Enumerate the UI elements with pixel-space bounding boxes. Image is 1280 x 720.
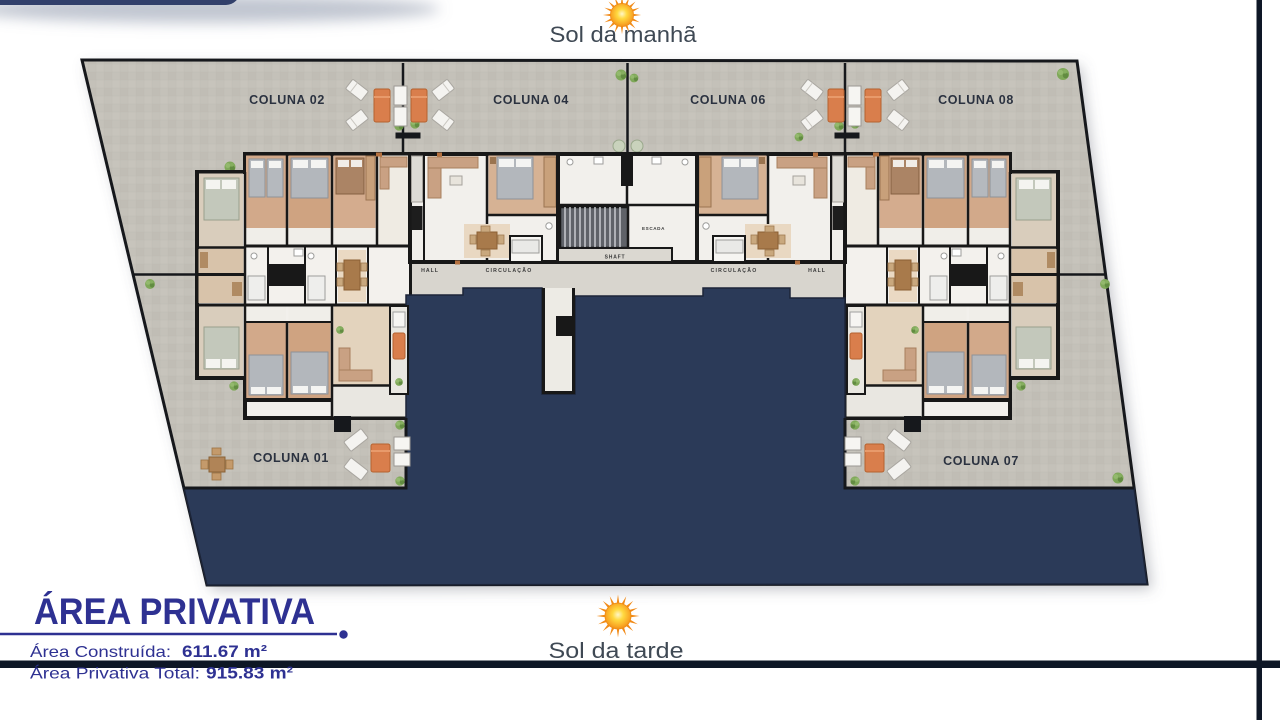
svg-text:611.67 m²: 611.67 m² bbox=[182, 642, 267, 661]
svg-text:COLUNA 01: COLUNA 01 bbox=[253, 451, 329, 465]
svg-text:CIRCULAÇÃO: CIRCULAÇÃO bbox=[711, 267, 758, 274]
svg-text:COLUNA 06: COLUNA 06 bbox=[690, 93, 766, 107]
svg-text:COLUNA 04: COLUNA 04 bbox=[493, 93, 569, 107]
svg-text:915.83 m²: 915.83 m² bbox=[206, 664, 293, 683]
svg-text:Sol da tarde: Sol da tarde bbox=[549, 638, 684, 663]
svg-text:HALL: HALL bbox=[808, 268, 826, 274]
svg-text:COLUNA 08: COLUNA 08 bbox=[938, 93, 1014, 107]
svg-text:SHAFT: SHAFT bbox=[605, 255, 626, 261]
svg-text:Área Privativa Total:: Área Privativa Total: bbox=[30, 664, 200, 683]
svg-text:ÁREA PRIVATIVA: ÁREA PRIVATIVA bbox=[34, 591, 315, 632]
svg-text:Área Construída:: Área Construída: bbox=[30, 642, 171, 661]
svg-text:COLUNA 02: COLUNA 02 bbox=[249, 93, 325, 107]
svg-text:CIRCULAÇÃO: CIRCULAÇÃO bbox=[486, 267, 533, 274]
svg-text:HALL: HALL bbox=[421, 268, 439, 274]
svg-text:COLUNA 07: COLUNA 07 bbox=[943, 454, 1019, 468]
svg-text:Sol da manhã: Sol da manhã bbox=[550, 22, 698, 47]
svg-text:ESCADA: ESCADA bbox=[642, 226, 665, 231]
